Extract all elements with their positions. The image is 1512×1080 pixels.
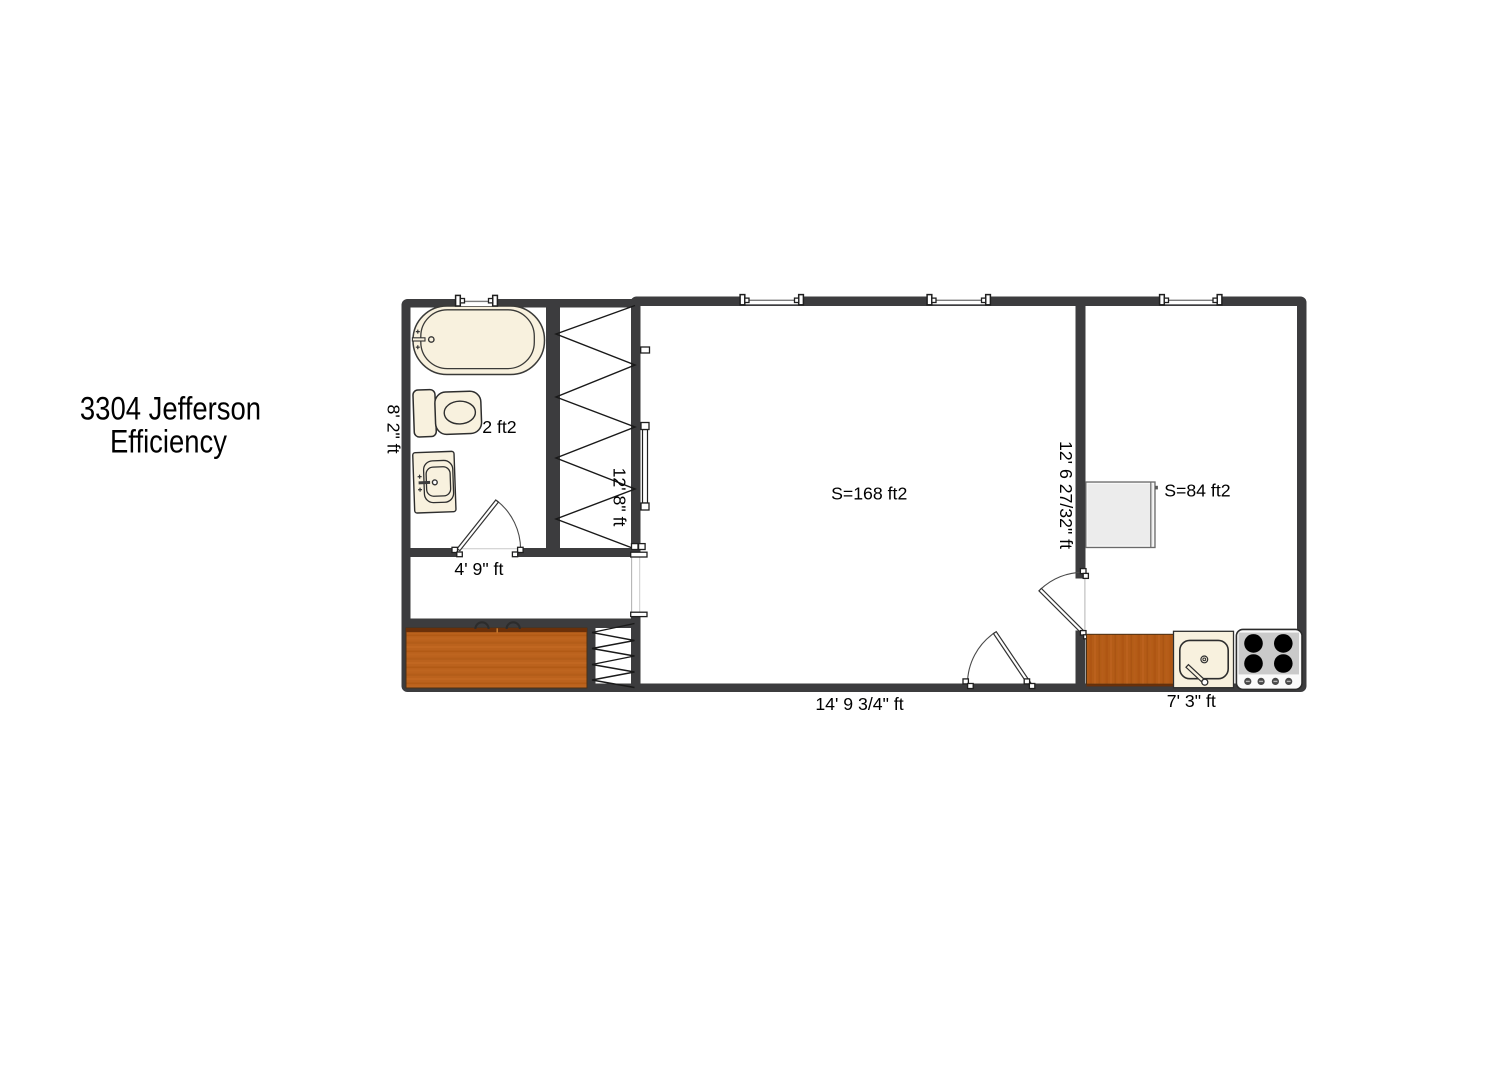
svg-text:14' 9 3/4" ft: 14' 9 3/4" ft [815, 694, 903, 714]
svg-text:S=84 ft2: S=84 ft2 [1164, 481, 1230, 501]
svg-text:2 ft2: 2 ft2 [482, 417, 516, 437]
svg-text:7' 3" ft: 7' 3" ft [1167, 691, 1216, 711]
svg-text:3304 Jefferson: 3304 Jefferson [80, 390, 261, 426]
svg-text:Efficiency: Efficiency [110, 423, 228, 459]
svg-text:S=168 ft2: S=168 ft2 [831, 483, 907, 503]
svg-text:12' 6 27/32" ft: 12' 6 27/32" ft [1056, 441, 1076, 549]
svg-text:8' 2" ft: 8' 2" ft [383, 405, 403, 454]
svg-text:4' 9" ft: 4' 9" ft [454, 559, 503, 579]
svg-text:12' 8" ft: 12' 8" ft [609, 468, 629, 527]
